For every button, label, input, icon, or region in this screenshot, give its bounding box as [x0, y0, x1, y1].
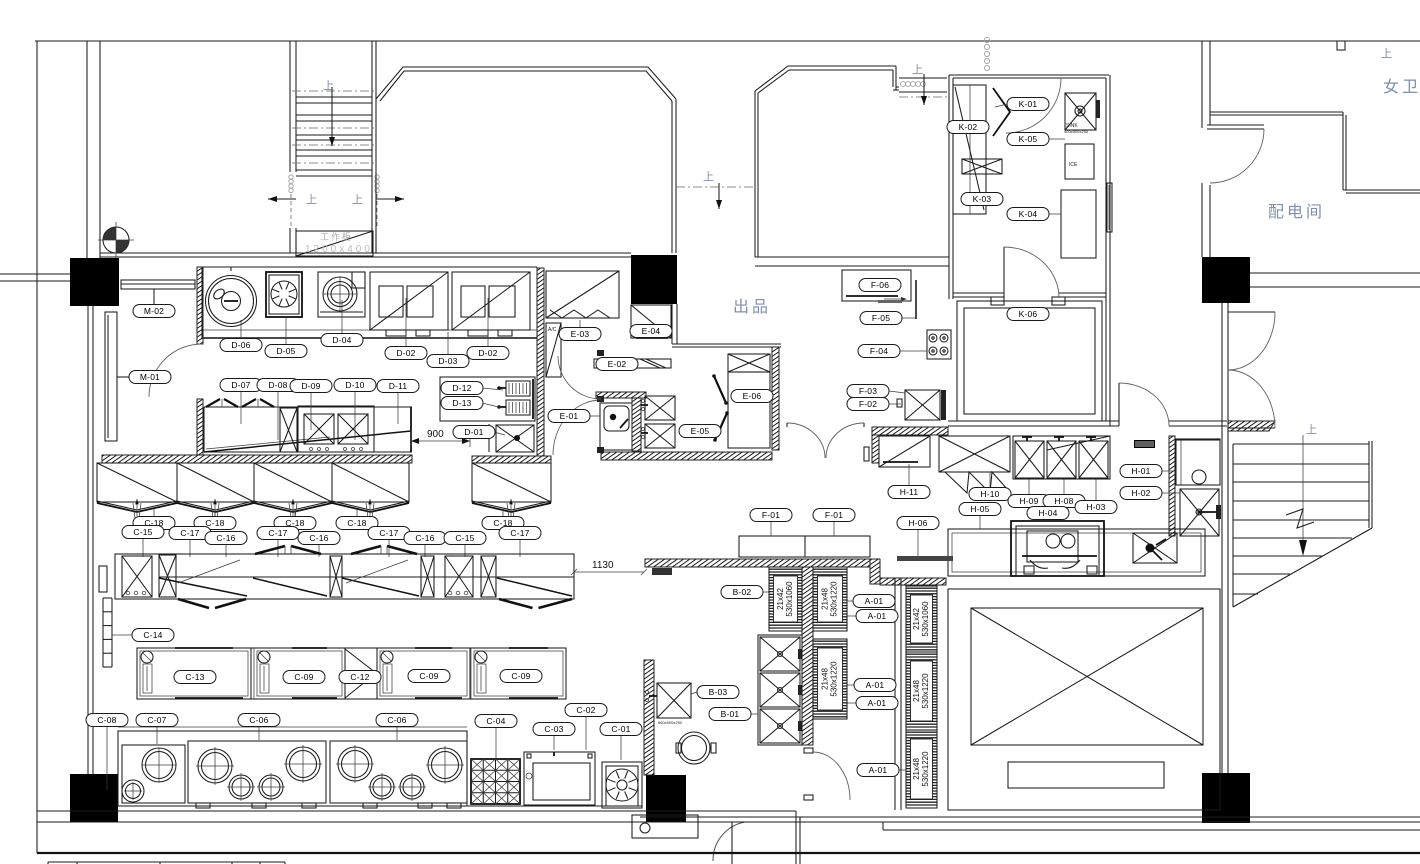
- svg-text:上: 上: [1306, 423, 1317, 436]
- svg-text:D-02: D-02: [478, 348, 497, 358]
- svg-text:M-02: M-02: [144, 306, 164, 316]
- svg-text:E-04: E-04: [642, 326, 661, 336]
- svg-text:上: 上: [306, 193, 317, 206]
- svg-text:D-08: D-08: [268, 380, 287, 390]
- svg-text:C-17: C-17: [379, 528, 398, 538]
- svg-text:A-01: A-01: [865, 596, 884, 606]
- svg-text:C-09: C-09: [419, 671, 438, 681]
- svg-text:F-01: F-01: [825, 510, 843, 520]
- svg-text:E-03: E-03: [571, 329, 590, 339]
- svg-text:D-10: D-10: [345, 380, 364, 390]
- svg-text:A-01: A-01: [869, 765, 888, 775]
- svg-text:C-01: C-01: [611, 724, 630, 734]
- svg-text:C-18: C-18: [347, 518, 366, 528]
- svg-text:21x48: 21x48: [912, 758, 921, 780]
- svg-text:D-03: D-03: [438, 356, 457, 366]
- svg-text:H-05: H-05: [970, 504, 989, 514]
- svg-text:出品: 出品: [733, 298, 771, 316]
- svg-text:K-01: K-01: [1019, 99, 1038, 109]
- svg-text:F-01: F-01: [762, 510, 780, 520]
- svg-text:21x42: 21x42: [912, 608, 921, 630]
- svg-text:上: 上: [352, 193, 363, 206]
- svg-text:B-01: B-01: [721, 709, 740, 719]
- svg-text:A/C: A/C: [548, 327, 557, 333]
- svg-text:D-04: D-04: [332, 335, 351, 345]
- svg-text:C-17: C-17: [180, 528, 199, 538]
- svg-text:C-06: C-06: [387, 715, 406, 725]
- svg-text:女卫: 女卫: [1383, 77, 1420, 96]
- svg-text:D-11: D-11: [389, 381, 408, 391]
- svg-text:上: 上: [912, 63, 923, 76]
- svg-text:C-17: C-17: [510, 528, 529, 538]
- svg-text:工作柜: 工作柜: [320, 231, 353, 242]
- svg-text:K-05: K-05: [1019, 134, 1038, 144]
- svg-text:21x48: 21x48: [821, 668, 830, 690]
- svg-text:D-13: D-13: [452, 398, 471, 408]
- svg-text:C-15: C-15: [455, 533, 474, 543]
- svg-text:400x500x250: 400x500x250: [1064, 129, 1089, 134]
- svg-text:F-02: F-02: [859, 399, 877, 409]
- svg-text:C-15: C-15: [133, 527, 152, 537]
- svg-text:E-01: E-01: [560, 411, 579, 421]
- svg-text:530x1220: 530x1220: [830, 581, 839, 617]
- svg-text:M-01: M-01: [140, 372, 160, 382]
- svg-text:530x1060: 530x1060: [785, 581, 794, 617]
- svg-text:D-07: D-07: [231, 380, 250, 390]
- svg-text:C-13: C-13: [185, 672, 204, 682]
- svg-text:H-01: H-01: [1131, 466, 1150, 476]
- svg-text:D-09: D-09: [301, 381, 320, 391]
- svg-text:530x1220: 530x1220: [830, 661, 839, 697]
- svg-text:C-17: C-17: [268, 528, 287, 538]
- svg-text:H-06: H-06: [908, 518, 927, 528]
- svg-text:D-02: D-02: [396, 348, 415, 358]
- svg-text:C-03: C-03: [544, 724, 563, 734]
- svg-text:C-12: C-12: [350, 672, 369, 682]
- svg-text:530x1220: 530x1220: [921, 673, 930, 709]
- svg-text:K-03: K-03: [973, 194, 992, 204]
- svg-text:C-09: C-09: [511, 671, 530, 681]
- svg-text:E-02: E-02: [608, 359, 627, 369]
- svg-text:C-09: C-09: [294, 672, 313, 682]
- svg-text:H-03: H-03: [1086, 502, 1105, 512]
- svg-text:F-04: F-04: [870, 346, 888, 356]
- svg-text:ICE: ICE: [1069, 162, 1078, 168]
- svg-text:F-03: F-03: [859, 386, 877, 396]
- svg-text:D-12: D-12: [452, 383, 471, 393]
- svg-text:660x500x250: 660x500x250: [658, 720, 683, 725]
- svg-text:K-04: K-04: [1019, 209, 1038, 219]
- svg-text:21x42: 21x42: [776, 588, 785, 610]
- svg-text:H-09: H-09: [1019, 496, 1038, 506]
- svg-text:上: 上: [1381, 47, 1392, 60]
- svg-text:配电间: 配电间: [1268, 203, 1325, 221]
- svg-text:A-01: A-01: [868, 611, 887, 621]
- svg-text:D-01: D-01: [464, 427, 483, 437]
- svg-text:K-06: K-06: [1019, 309, 1038, 319]
- svg-text:C-02: C-02: [576, 705, 595, 715]
- svg-text:H-02: H-02: [1131, 488, 1150, 498]
- svg-text:C-14: C-14: [143, 630, 162, 640]
- svg-text:F-05: F-05: [872, 313, 890, 323]
- svg-text:H-04: H-04: [1038, 508, 1057, 518]
- svg-text:B-02: B-02: [733, 587, 752, 597]
- svg-text:1130: 1130: [592, 560, 614, 571]
- svg-text:21x48: 21x48: [821, 588, 830, 610]
- svg-text:C-08: C-08: [97, 715, 116, 725]
- svg-text:E-05: E-05: [691, 426, 710, 436]
- svg-text:C-16: C-16: [216, 533, 235, 543]
- svg-text:上: 上: [323, 79, 334, 92]
- svg-text:H-08: H-08: [1054, 496, 1073, 506]
- svg-text:D-06: D-06: [231, 340, 250, 350]
- svg-text:A-01: A-01: [868, 698, 887, 708]
- svg-text:F-06: F-06: [871, 280, 889, 290]
- svg-text:K-02: K-02: [959, 122, 978, 132]
- svg-text:E-06: E-06: [743, 391, 762, 401]
- svg-text:C-06: C-06: [249, 715, 268, 725]
- svg-text:21x48: 21x48: [912, 680, 921, 702]
- svg-text:C-07: C-07: [147, 715, 166, 725]
- svg-text:C-16: C-16: [415, 533, 434, 543]
- svg-text:C-16: C-16: [309, 533, 328, 543]
- svg-text:H-10: H-10: [980, 489, 999, 499]
- svg-text:900: 900: [427, 429, 444, 440]
- svg-text:A-01: A-01: [866, 680, 885, 690]
- svg-text:H-11: H-11: [900, 487, 919, 497]
- svg-text:B-03: B-03: [709, 687, 728, 697]
- svg-text:C-04: C-04: [486, 716, 505, 726]
- svg-text:530x1060: 530x1060: [921, 601, 930, 637]
- svg-text:530x1220: 530x1220: [921, 751, 930, 787]
- svg-text:C-18: C-18: [205, 518, 224, 528]
- svg-text:D-05: D-05: [276, 346, 295, 356]
- svg-text:上: 上: [703, 170, 714, 183]
- svg-text:1200x400: 1200x400: [305, 244, 373, 255]
